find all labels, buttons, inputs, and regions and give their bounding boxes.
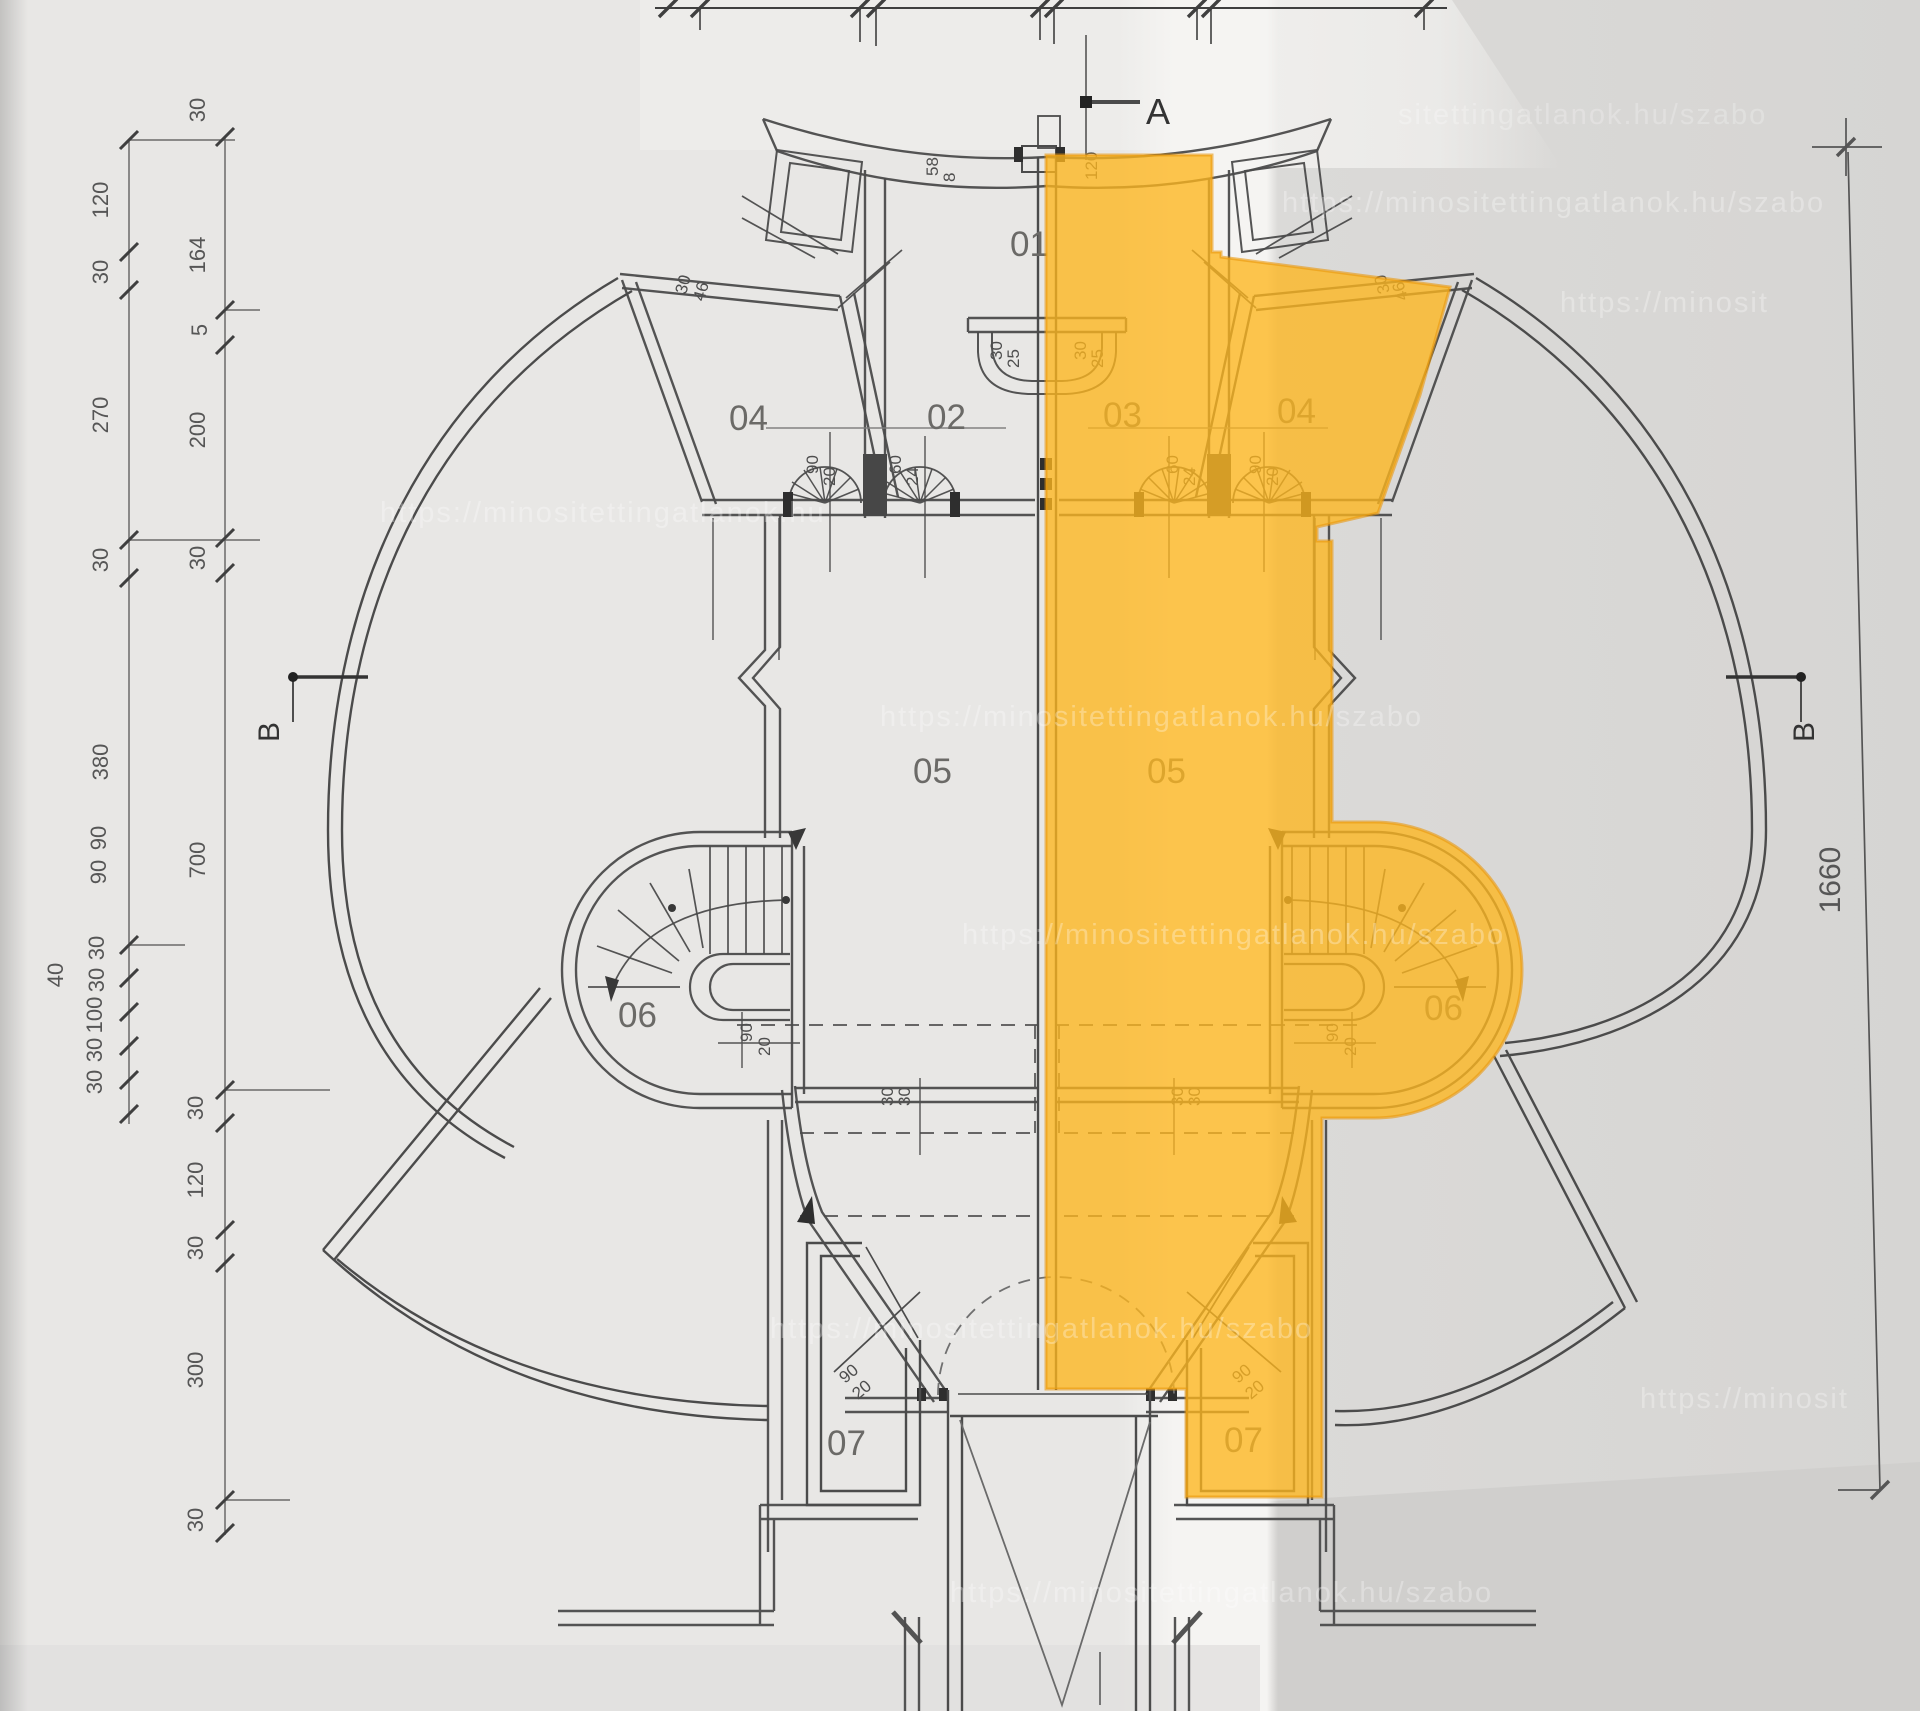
svg-text:20: 20 <box>755 1037 774 1056</box>
svg-text:120: 120 <box>88 182 113 219</box>
svg-text:25: 25 <box>1004 349 1023 368</box>
svg-text:164: 164 <box>185 237 210 274</box>
svg-text:https://minositettingatlanok.h: https://minositettingatlanok.hu <box>380 497 826 529</box>
svg-text:01: 01 <box>1010 225 1049 264</box>
svg-text:100: 100 <box>82 997 107 1034</box>
svg-text:30: 30 <box>88 548 113 572</box>
svg-text:https://minosit: https://minosit <box>1560 287 1769 319</box>
svg-text:A: A <box>1146 91 1170 132</box>
svg-text:30: 30 <box>88 260 113 284</box>
svg-text:30: 30 <box>84 968 109 992</box>
svg-text:06: 06 <box>618 996 657 1035</box>
svg-text:05: 05 <box>913 752 952 791</box>
svg-text:30: 30 <box>183 1236 208 1260</box>
svg-text:B: B <box>253 722 286 742</box>
svg-text:90: 90 <box>737 1023 756 1042</box>
svg-text:24: 24 <box>903 467 922 486</box>
svg-text:30: 30 <box>183 1508 208 1532</box>
svg-text:300: 300 <box>183 1352 208 1389</box>
svg-text:30: 30 <box>895 1087 914 1106</box>
svg-text:https://minositettingatlanok.h: https://minositettingatlanok.hu/szabo <box>950 1577 1493 1609</box>
svg-text:8: 8 <box>940 173 959 182</box>
svg-text:07: 07 <box>827 1424 866 1463</box>
svg-text:30: 30 <box>185 98 210 122</box>
svg-text:30: 30 <box>183 1096 208 1120</box>
svg-text:380: 380 <box>88 744 113 781</box>
svg-text:30: 30 <box>82 1070 107 1094</box>
svg-text:5: 5 <box>187 324 212 336</box>
svg-text:90: 90 <box>86 860 111 884</box>
svg-text:https://minositettingatlanok.h: https://minositettingatlanok.hu/szabo <box>880 701 1423 733</box>
svg-text:30: 30 <box>84 936 109 960</box>
svg-text:sitettingatlanok.hu/szabo: sitettingatlanok.hu/szabo <box>1398 99 1767 131</box>
svg-text:https://minositettingatlanok.h: https://minositettingatlanok.hu/szabo <box>962 919 1505 951</box>
svg-text:https://minositettingatlanok.h: https://minositettingatlanok.hu/szabo <box>1282 187 1825 219</box>
svg-text:200: 200 <box>185 412 210 449</box>
svg-text:30: 30 <box>185 546 210 570</box>
svg-text:700: 700 <box>185 842 210 879</box>
svg-text:02: 02 <box>927 398 966 437</box>
svg-text:1660: 1660 <box>1814 847 1847 914</box>
svg-text:30: 30 <box>82 1038 107 1062</box>
svg-text:40: 40 <box>43 963 68 987</box>
svg-text:20: 20 <box>820 467 839 486</box>
svg-text:270: 270 <box>88 397 113 434</box>
svg-text:120: 120 <box>183 1162 208 1199</box>
svg-text:https://minositettingatlanok.h: https://minositettingatlanok.hu/szabo <box>770 1313 1313 1345</box>
svg-text:90: 90 <box>86 826 111 850</box>
svg-text:04: 04 <box>729 399 768 438</box>
svg-text:B: B <box>1788 722 1821 742</box>
svg-text:https://minosit: https://minosit <box>1640 1383 1849 1415</box>
